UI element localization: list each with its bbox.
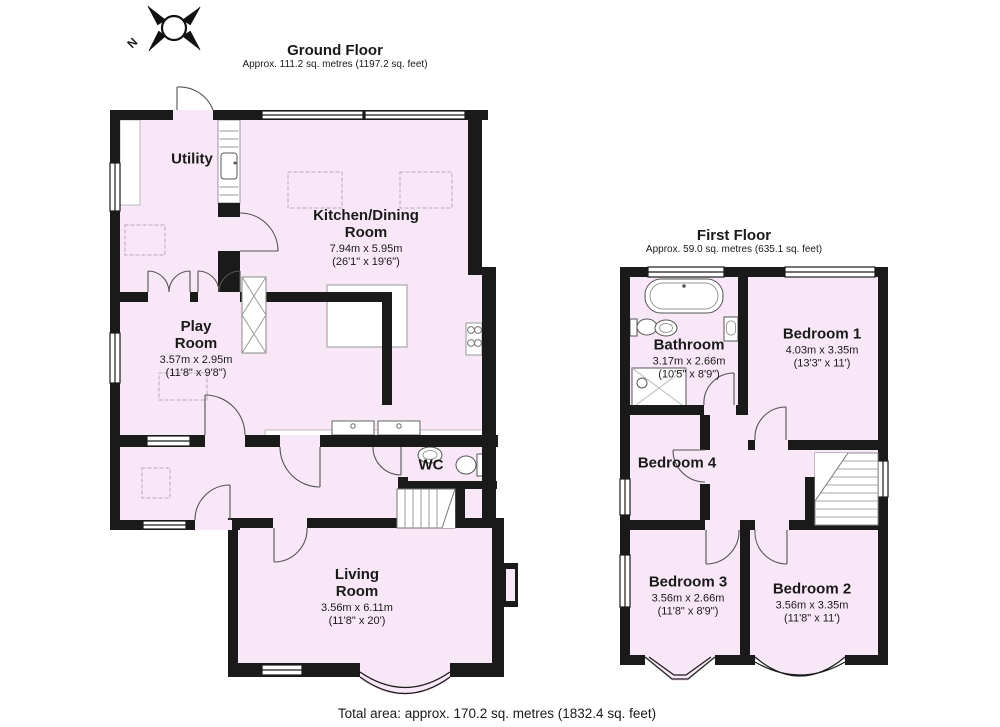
ground-floor-area xyxy=(115,115,495,695)
chimney-breast xyxy=(506,569,515,601)
pantry-cupboard xyxy=(242,277,266,353)
ground-floor-subtitle: Approx. 111.2 sq. metres (1197.2 sq. fee… xyxy=(242,59,427,70)
ground-floor-title: Ground Floor xyxy=(287,42,383,59)
first-floor-subtitle: Approx. 59.0 sq. metres (635.1 sq. feet) xyxy=(646,244,822,255)
first-floor-stairs xyxy=(815,453,878,525)
ground-floor-stairs xyxy=(397,489,455,528)
first-floor-title: First Floor xyxy=(697,227,771,244)
ground-floor-plan xyxy=(110,85,512,697)
first-floor-plan xyxy=(620,265,900,695)
floorplan-page: N Ground Floor Approx. 111.2 sq. metres … xyxy=(0,0,1000,727)
total-area-label: Total area: approx. 170.2 sq. metres (18… xyxy=(338,706,656,721)
compass-rose-icon xyxy=(138,2,214,56)
